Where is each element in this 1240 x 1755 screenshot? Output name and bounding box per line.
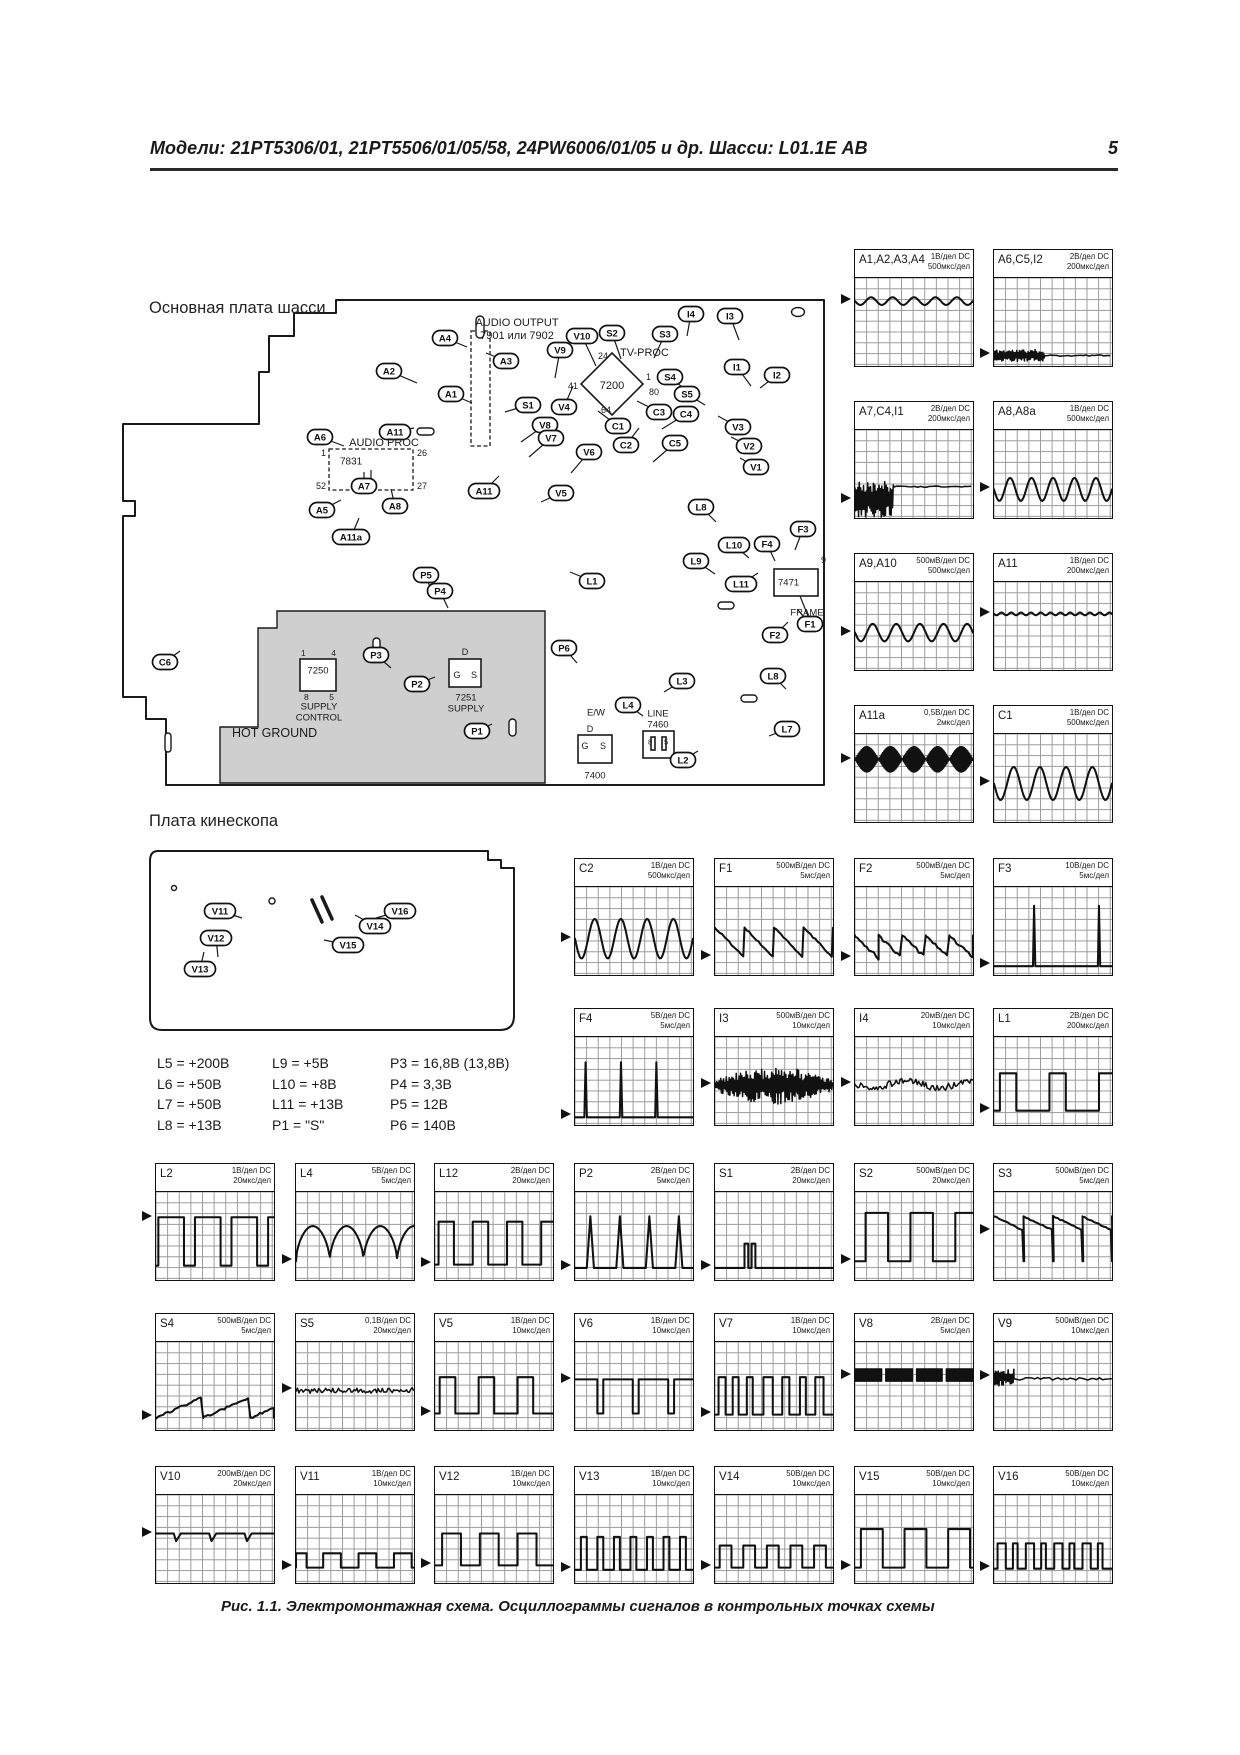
oscillogram-scale: 1В/дел DC10мкс/дел <box>511 1469 550 1488</box>
voltage-legend-line: P6 = 140В <box>390 1115 509 1136</box>
oscillogram-I3: I3500мВ/дел DC10мкс/дел <box>714 1008 834 1126</box>
oscillogram-F3: F310В/дел DC5мс/дел <box>993 858 1113 976</box>
oscillogram-scale: 0,1В/дел DC20мкс/дел <box>365 1316 411 1335</box>
oscillogram-grid <box>714 1341 834 1431</box>
waveform <box>994 350 1110 362</box>
oscillogram-header: L45В/дел DC5мс/дел <box>295 1163 415 1191</box>
oscillogram-header: S3500мВ/дел DC5мс/дел <box>993 1163 1113 1191</box>
svg-text:A4: A4 <box>439 333 452 344</box>
oscillogram-testpoint-label: V12 <box>439 1469 459 1483</box>
oscillogram-scale: 10В/дел DC5мс/дел <box>1065 861 1109 880</box>
waveform <box>575 919 693 959</box>
main-board-title: Основная плата шасси <box>149 299 326 318</box>
oscillogram-header: L122В/дел DC20мкс/дел <box>434 1163 554 1191</box>
board-label: S <box>600 741 606 751</box>
svg-text:S3: S3 <box>659 329 671 340</box>
svg-text:A3: A3 <box>500 356 512 367</box>
oscillogram-grid <box>854 1494 974 1584</box>
oscillogram-testpoint-label: F4 <box>579 1011 592 1025</box>
oscillogram-header: P22В/дел DC5мкс/дел <box>574 1163 694 1191</box>
oscillogram-scale: 500мВ/дел DC5мс/дел <box>1055 1166 1109 1185</box>
oscillogram-grid <box>993 733 1113 823</box>
oscillogram-header: A11a0,5В/дел DC2мкс/дел <box>854 705 974 733</box>
oscillogram-grid <box>574 886 694 976</box>
oscillogram-testpoint-label: I4 <box>859 1011 869 1025</box>
oscillogram-scale: 2В/дел DC200мкс/дел <box>928 404 970 423</box>
oscillogram-grid <box>854 1036 974 1126</box>
oscillogram-grid <box>854 429 974 519</box>
figure-caption: Рис. 1.1. Электромонтажная схема. Осцилл… <box>221 1598 935 1615</box>
oscillogram-testpoint-label: L2 <box>160 1166 173 1180</box>
svg-text:C3: C3 <box>653 407 665 418</box>
voltage-legend-line: P3 = 16,8В (13,8В) <box>390 1053 509 1074</box>
oscillogram-grid <box>155 1191 275 1281</box>
oscillogram-grid <box>155 1341 275 1431</box>
oscillogram-scale: 5В/дел DC5мс/дел <box>372 1166 411 1185</box>
svg-text:F1: F1 <box>804 619 816 630</box>
svg-text:P6: P6 <box>558 643 570 654</box>
oscillogram-header: F2500мВ/дел DC5мс/дел <box>854 858 974 886</box>
oscillogram-scale: 200мВ/дел DC20мкс/дел <box>217 1469 271 1488</box>
oscillogram-header: A9,A10500мВ/дел DC500мкс/дел <box>854 553 974 581</box>
svg-text:V16: V16 <box>392 906 409 917</box>
svg-text:A7: A7 <box>358 481 370 492</box>
svg-text:P5: P5 <box>420 570 432 581</box>
oscillogram-testpoint-label: S4 <box>160 1316 174 1330</box>
waveform <box>994 1369 1111 1386</box>
crt-hole <box>172 886 177 891</box>
waveform <box>994 906 1112 966</box>
board-label: 1 <box>646 372 651 382</box>
board-label: 8 <box>304 692 309 702</box>
oscillogram-scale: 50В/дел DC10мкс/дел <box>786 1469 830 1488</box>
oscillogram-V6: V61В/дел DC10мкс/дел <box>574 1313 694 1431</box>
board-label: 4 <box>331 648 336 658</box>
svg-text:P2: P2 <box>411 679 423 690</box>
board-label: SUPPLY <box>448 704 485 715</box>
oscillogram-grid <box>993 1036 1113 1126</box>
oscillogram-header: V1650В/дел DC10мкс/дел <box>993 1466 1113 1494</box>
oscillogram-header: V51В/дел DC10мкс/дел <box>434 1313 554 1341</box>
waveform <box>715 927 833 956</box>
oscillogram-scale: 50В/дел DC10мкс/дел <box>926 1469 970 1488</box>
svg-text:V14: V14 <box>367 921 385 932</box>
oscillogram-grid <box>993 277 1113 367</box>
oscillogram-header: V1450В/дел DC10мкс/дел <box>714 1466 834 1494</box>
oscillogram-scale: 500мВ/дел DC10мкс/дел <box>776 1011 830 1030</box>
board-label: 7460 <box>647 720 668 731</box>
oscillogram-header: C21В/дел DC500мкс/дел <box>574 858 694 886</box>
oscillogram-testpoint-label: P2 <box>579 1166 593 1180</box>
oscillogram-grid <box>993 1191 1113 1281</box>
oscillogram-grid <box>854 581 974 671</box>
oscillogram-scale: 500мВ/дел DC5мс/дел <box>916 861 970 880</box>
oscillogram-scale: 1В/дел DC10мкс/дел <box>651 1316 690 1335</box>
oscillogram-testpoint-label: S2 <box>859 1166 873 1180</box>
svg-text:A11: A11 <box>476 486 494 497</box>
oscillogram-testpoint-label: V15 <box>859 1469 879 1483</box>
oscillogram-A8-A8a: A8,A8a1В/дел DC500мкс/дел <box>993 401 1113 519</box>
svg-text:C2: C2 <box>620 440 632 451</box>
oscillogram-header: A111В/дел DC200мкс/дел <box>993 553 1113 581</box>
svg-text:V4: V4 <box>558 402 570 413</box>
oscillogram-P2: P22В/дел DC5мкс/дел <box>574 1163 694 1281</box>
oscillogram-grid <box>993 886 1113 976</box>
oscillogram-scale: 500мВ/дел DC5мс/дел <box>217 1316 271 1335</box>
oscillogram-S5: S50,1В/дел DC20мкс/дел <box>295 1313 415 1431</box>
waveform <box>994 1073 1112 1110</box>
svg-text:L8: L8 <box>695 502 706 513</box>
board-label: AUDIO PROC <box>349 437 419 449</box>
oscillogram-testpoint-label: V9 <box>998 1316 1012 1330</box>
oscillogram-scale: 2В/дел DC5мкс/дел <box>651 1166 690 1185</box>
oscillogram-header: F45В/дел DC5мс/дел <box>574 1008 694 1036</box>
waveform <box>575 1216 693 1268</box>
waveform <box>855 747 973 772</box>
svg-text:A2: A2 <box>383 366 395 377</box>
oscillogram-testpoint-label: L12 <box>439 1166 458 1180</box>
oscillogram-testpoint-label: S1 <box>719 1166 733 1180</box>
oscillogram-testpoint-label: V8 <box>859 1316 873 1330</box>
waveform <box>156 1217 274 1265</box>
board-label: HOT GROUND <box>232 726 317 740</box>
voltage-legend: L5 = +200ВL6 = +50ВL7 = +50ВL8 = +13ВL9 … <box>157 1053 509 1135</box>
oscillogram-header: F1500мВ/дел DC5мс/дел <box>714 858 834 886</box>
waveform <box>855 935 973 960</box>
waveform <box>855 1369 973 1381</box>
oscillogram-L2: L21В/дел DC20мкс/дел <box>155 1163 275 1281</box>
oscillogram-testpoint-label: V7 <box>719 1316 733 1330</box>
svg-text:V6: V6 <box>583 447 595 458</box>
waveform <box>715 1068 832 1104</box>
oscillogram-scale: 1В/дел DC20мкс/дел <box>232 1166 271 1185</box>
oscillogram-scale: 1В/дел DC10мкс/дел <box>791 1316 830 1335</box>
oscillogram-scale: 20мВ/дел DC10мкс/дел <box>921 1011 970 1030</box>
svg-text:S1: S1 <box>522 400 534 411</box>
crt-hole <box>269 898 275 904</box>
oscillogram-testpoint-label: A11 <box>998 556 1018 570</box>
waveform <box>994 767 1112 800</box>
oscillogram-header: A7,C4,I12В/дел DC200мкс/дел <box>854 401 974 429</box>
oscillogram-testpoint-label: F2 <box>859 861 872 875</box>
oscillogram-scale: 5В/дел DC5мс/дел <box>651 1011 690 1030</box>
oscillogram-scale: 1В/дел DC10мкс/дел <box>651 1469 690 1488</box>
oscillogram-grid <box>993 581 1113 671</box>
svg-text:F3: F3 <box>797 524 808 535</box>
oscillogram-V14: V1450В/дел DC10мкс/дел <box>714 1466 834 1584</box>
oscillogram-grid <box>993 1494 1113 1584</box>
oscillogram-scale: 1В/дел DC200мкс/дел <box>1067 556 1109 575</box>
waveform <box>435 1222 553 1265</box>
svg-text:V9: V9 <box>554 345 566 356</box>
board-label: LINE <box>647 709 668 720</box>
board-label: 64 <box>601 405 611 415</box>
oscillogram-scale: 500мВ/дел DC10мкс/дел <box>1055 1316 1109 1335</box>
oscillogram-scale: 0,5В/дел DC2мкс/дел <box>924 708 970 727</box>
board-label: AUDIO OUTPUT <box>475 317 558 329</box>
oscillogram-A7-C4-I1: A7,C4,I12В/дел DC200мкс/дел <box>854 401 974 519</box>
svg-text:S4: S4 <box>664 372 676 383</box>
voltage-legend-line: L6 = +50В <box>157 1074 272 1095</box>
oscillogram-L4: L45В/дел DC5мс/дел <box>295 1163 415 1281</box>
svg-text:A1: A1 <box>445 389 458 400</box>
board-slot <box>165 733 171 752</box>
oscillogram-header: V82В/дел DC5мс/дел <box>854 1313 974 1341</box>
svg-text:V1: V1 <box>750 462 762 473</box>
oscillogram-V9: V9500мВ/дел DC10мкс/дел <box>993 1313 1113 1431</box>
oscillogram-header: I420мВ/дел DC10мкс/дел <box>854 1008 974 1036</box>
oscillogram-scale: 1В/дел DC500мкс/дел <box>1067 708 1109 727</box>
board-label: 7831 <box>340 457 362 468</box>
oscillogram-I4: I420мВ/дел DC10мкс/дел <box>854 1008 974 1126</box>
oscillogram-header: S4500мВ/дел DC5мс/дел <box>155 1313 275 1341</box>
oscillogram-testpoint-label: V10 <box>160 1469 180 1483</box>
oscillogram-header: A1,A2,A3,A41В/дел DC500мкс/дел <box>854 249 974 277</box>
oscillogram-S3: S3500мВ/дел DC5мс/дел <box>993 1163 1113 1281</box>
voltage-legend-line: L5 = +200В <box>157 1053 272 1074</box>
svg-text:V11: V11 <box>212 906 229 917</box>
oscillogram-header: V9500мВ/дел DC10мкс/дел <box>993 1313 1113 1341</box>
hot-ground-region <box>220 611 545 783</box>
oscillogram-C1: C11В/дел DC500мкс/дел <box>993 705 1113 823</box>
oscillogram-testpoint-label: L4 <box>300 1166 313 1180</box>
board-label: D <box>587 724 594 734</box>
svg-text:A11a: A11a <box>340 532 363 543</box>
oscillogram-testpoint-label: V13 <box>579 1469 599 1483</box>
svg-text:L1: L1 <box>586 576 598 587</box>
oscillogram-testpoint-label: V11 <box>300 1469 320 1483</box>
waveform <box>994 478 1112 501</box>
waveform <box>435 1533 553 1565</box>
legend-column: P3 = 16,8В (13,8В)P4 = 3,3ВP5 = 12ВP6 = … <box>390 1053 509 1135</box>
oscillogram-scale: 50В/дел DC10мкс/дел <box>1065 1469 1109 1488</box>
oscillogram-scale: 2В/дел DC20мкс/дел <box>791 1166 830 1185</box>
svg-text:L2: L2 <box>677 755 688 766</box>
svg-text:A8: A8 <box>389 501 401 512</box>
oscillogram-testpoint-label: L1 <box>998 1011 1011 1025</box>
board-label: 52 <box>316 481 326 491</box>
oscillogram-scale: 1В/дел DC500мкс/дел <box>928 252 970 271</box>
oscillogram-header: A6,C5,I22В/дел DC200мкс/дел <box>993 249 1113 277</box>
svg-text:L11: L11 <box>733 579 750 590</box>
oscillogram-grid <box>434 1494 554 1584</box>
waveform <box>855 482 971 517</box>
waveform <box>994 1543 1112 1568</box>
oscillogram-scale: 1В/дел DC500мкс/дел <box>648 861 690 880</box>
waveform <box>296 1553 414 1567</box>
oscillogram-V13: V131В/дел DC10мкс/дел <box>574 1466 694 1584</box>
waveform <box>575 1379 693 1413</box>
oscillogram-V11: V111В/дел DC10мкс/дел <box>295 1466 415 1584</box>
board-label: G <box>453 670 460 680</box>
voltage-legend-line: P5 = 12В <box>390 1094 509 1115</box>
oscillogram-grid <box>574 1191 694 1281</box>
oscillogram-grid <box>854 1191 974 1281</box>
oscillogram-grid <box>714 1036 834 1126</box>
legend-column: L9 = +5ВL10 = +8ВL11 = +13ВP1 = "S" <box>272 1053 390 1135</box>
oscillogram-V10: V10200мВ/дел DC20мкс/дел <box>155 1466 275 1584</box>
oscillogram-grid <box>574 1341 694 1431</box>
oscillogram-header: V1550В/дел DC10мкс/дел <box>854 1466 974 1494</box>
board-label: 1 <box>321 448 326 458</box>
board-label: 26 <box>417 448 427 458</box>
oscillogram-grid <box>574 1036 694 1126</box>
oscillogram-grid <box>714 1494 834 1584</box>
voltage-legend-line: L7 = +50В <box>157 1094 272 1115</box>
waveform <box>715 1546 833 1568</box>
waveform <box>575 1537 693 1570</box>
oscillogram-scale: 500мВ/дел DC20мкс/дел <box>916 1166 970 1185</box>
oscillogram-header: V131В/дел DC10мкс/дел <box>574 1466 694 1494</box>
oscillogram-scale: 1В/дел DC10мкс/дел <box>511 1316 550 1335</box>
board-label: TV-PROC <box>620 347 669 359</box>
crt-board-title: Плата кинескопа <box>149 812 278 831</box>
oscillogram-header: I3500мВ/дел DC10мкс/дел <box>714 1008 834 1036</box>
oscillogram-grid <box>295 1191 415 1281</box>
oscillogram-A11: A111В/дел DC200мкс/дел <box>993 553 1113 671</box>
svg-text:L4: L4 <box>622 700 634 711</box>
oscillogram-header: C11В/дел DC500мкс/дел <box>993 705 1113 733</box>
waveform <box>435 1377 553 1413</box>
oscillogram-A9-A10: A9,A10500мВ/дел DC500мкс/дел <box>854 553 974 671</box>
oscillogram-C2: C21В/дел DC500мкс/дел <box>574 858 694 976</box>
legend-column: L5 = +200ВL6 = +50ВL7 = +50ВL8 = +13В <box>157 1053 272 1135</box>
oscillogram-testpoint-label: A11a <box>859 708 885 722</box>
waveform <box>994 1216 1112 1261</box>
waveform <box>156 1398 274 1419</box>
board-label: 7250 <box>307 666 328 677</box>
waveform <box>156 1533 274 1541</box>
page-canvas: Модели: 21PT5306/01, 21PT5506/01/05/58, … <box>0 0 1240 1755</box>
waveform <box>575 1062 693 1117</box>
board-label: CONTROL <box>296 713 342 724</box>
oscillogram-testpoint-label: S5 <box>300 1316 314 1330</box>
voltage-legend-line: P4 = 3,3В <box>390 1074 509 1095</box>
oscillogram-V5: V51В/дел DC10мкс/дел <box>434 1313 554 1431</box>
voltage-legend-line: L9 = +5В <box>272 1053 390 1074</box>
oscillogram-header: V71В/дел DC10мкс/дел <box>714 1313 834 1341</box>
waveform <box>715 1244 833 1268</box>
waveform <box>855 1529 973 1568</box>
board-label: 9 <box>821 555 826 565</box>
oscillogram-testpoint-label: A1,A2,A3,A4 <box>859 252 925 266</box>
svg-text:A5: A5 <box>316 505 329 516</box>
board-label: 41 <box>568 381 578 391</box>
oscillogram-testpoint-label: C1 <box>998 708 1013 722</box>
voltage-legend-line: P1 = "S" <box>272 1115 390 1136</box>
oscillogram-testpoint-label: V16 <box>998 1469 1018 1483</box>
oscillogram-grid <box>295 1341 415 1431</box>
oscillogram-testpoint-label: A6,C5,I2 <box>998 252 1043 266</box>
board-label: D <box>462 647 469 657</box>
oscillogram-L12: L122В/дел DC20мкс/дел <box>434 1163 554 1281</box>
oscillogram-header: V10200мВ/дел DC20мкс/дел <box>155 1466 275 1494</box>
oscillogram-S4: S4500мВ/дел DC5мс/дел <box>155 1313 275 1431</box>
board-label: 27 <box>417 481 427 491</box>
oscillogram-V15: V1550В/дел DC10мкс/дел <box>854 1466 974 1584</box>
oscillogram-testpoint-label: A9,A10 <box>859 556 897 570</box>
oscillogram-grid <box>434 1341 554 1431</box>
waveform <box>855 297 973 305</box>
oscillogram-scale: 1В/дел DC500мкс/дел <box>1067 404 1109 423</box>
oscillogram-testpoint-label: A7,C4,I1 <box>859 404 904 418</box>
waveform <box>855 1213 973 1261</box>
board-label: 24 <box>598 351 608 361</box>
oscillogram-F1: F1500мВ/дел DC5мс/дел <box>714 858 834 976</box>
oscillogram-header: A8,A8a1В/дел DC500мкс/дел <box>993 401 1113 429</box>
test-point-P1: P1 <box>465 724 493 739</box>
board-label: 7400 <box>584 771 605 782</box>
voltage-legend-line: L10 = +8В <box>272 1074 390 1095</box>
oscillogram-scale: 2В/дел DC20мкс/дел <box>511 1166 550 1185</box>
oscillogram-A1-A2-A3-A4: A1,A2,A3,A41В/дел DC500мкс/дел <box>854 249 974 367</box>
oscillogram-testpoint-label: V6 <box>579 1316 593 1330</box>
svg-text:C1: C1 <box>612 421 625 432</box>
svg-text:V12: V12 <box>208 933 225 944</box>
oscillogram-scale: 2В/дел DC200мкс/дел <box>1067 252 1109 271</box>
oscillogram-header: F310В/дел DC5мс/дел <box>993 858 1113 886</box>
waveform <box>715 1377 833 1414</box>
board-label: 1 <box>301 648 306 658</box>
svg-text:F2: F2 <box>769 630 780 641</box>
svg-text:V2: V2 <box>743 441 755 452</box>
svg-text:A6: A6 <box>314 432 326 443</box>
oscillogram-header: S50,1В/дел DC20мкс/дел <box>295 1313 415 1341</box>
oscillogram-scale: 500мВ/дел DC500мкс/дел <box>916 556 970 575</box>
oscillogram-grid <box>993 429 1113 519</box>
svg-text:V13: V13 <box>192 964 209 975</box>
waveform <box>855 1079 972 1091</box>
oscillogram-S1: S12В/дел DC20мкс/дел <box>714 1163 834 1281</box>
board-label: 8 <box>648 738 652 747</box>
board-label: G <box>581 741 588 751</box>
svg-text:I1: I1 <box>733 362 742 373</box>
oscillogram-header: L21В/дел DC20мкс/дел <box>155 1163 275 1191</box>
svg-text:V7: V7 <box>545 433 557 444</box>
oscillogram-header: V61В/дел DC10мкс/дел <box>574 1313 694 1341</box>
oscillogram-scale: 2В/дел DC200мкс/дел <box>1067 1011 1109 1030</box>
oscillogram-testpoint-label: V14 <box>719 1469 739 1483</box>
voltage-legend-line: L8 = +13В <box>157 1115 272 1136</box>
oscillogram-header: S2500мВ/дел DC20мкс/дел <box>854 1163 974 1191</box>
svg-text:V15: V15 <box>340 940 358 951</box>
board-label: E/W <box>587 708 605 719</box>
svg-text:P3: P3 <box>370 650 382 661</box>
oscillogram-A6-C5-I2: A6,C5,I22В/дел DC200мкс/дел <box>993 249 1113 367</box>
oscillogram-grid <box>295 1494 415 1584</box>
svg-text:P4: P4 <box>434 586 446 597</box>
oscillogram-V8: V82В/дел DC5мс/дел <box>854 1313 974 1431</box>
svg-text:I3: I3 <box>726 311 734 322</box>
board-label: S <box>471 670 477 680</box>
oscillogram-testpoint-label: F1 <box>719 861 732 875</box>
svg-text:L3: L3 <box>676 676 687 687</box>
waveform <box>855 624 973 641</box>
svg-text:L10: L10 <box>726 540 742 551</box>
oscillogram-header: L12В/дел DC200мкс/дел <box>993 1008 1113 1036</box>
oscillogram-grid <box>434 1191 554 1281</box>
screw-hole <box>792 308 805 317</box>
svg-text:L8: L8 <box>767 671 778 682</box>
svg-text:V5: V5 <box>555 488 567 499</box>
waveform <box>296 1226 414 1261</box>
svg-text:V3: V3 <box>732 422 744 433</box>
oscillogram-S2: S2500мВ/дел DC20мкс/дел <box>854 1163 974 1281</box>
oscillogram-grid <box>854 886 974 976</box>
svg-text:V10: V10 <box>574 331 591 342</box>
svg-text:L7: L7 <box>781 724 792 735</box>
svg-text:C6: C6 <box>159 657 171 668</box>
